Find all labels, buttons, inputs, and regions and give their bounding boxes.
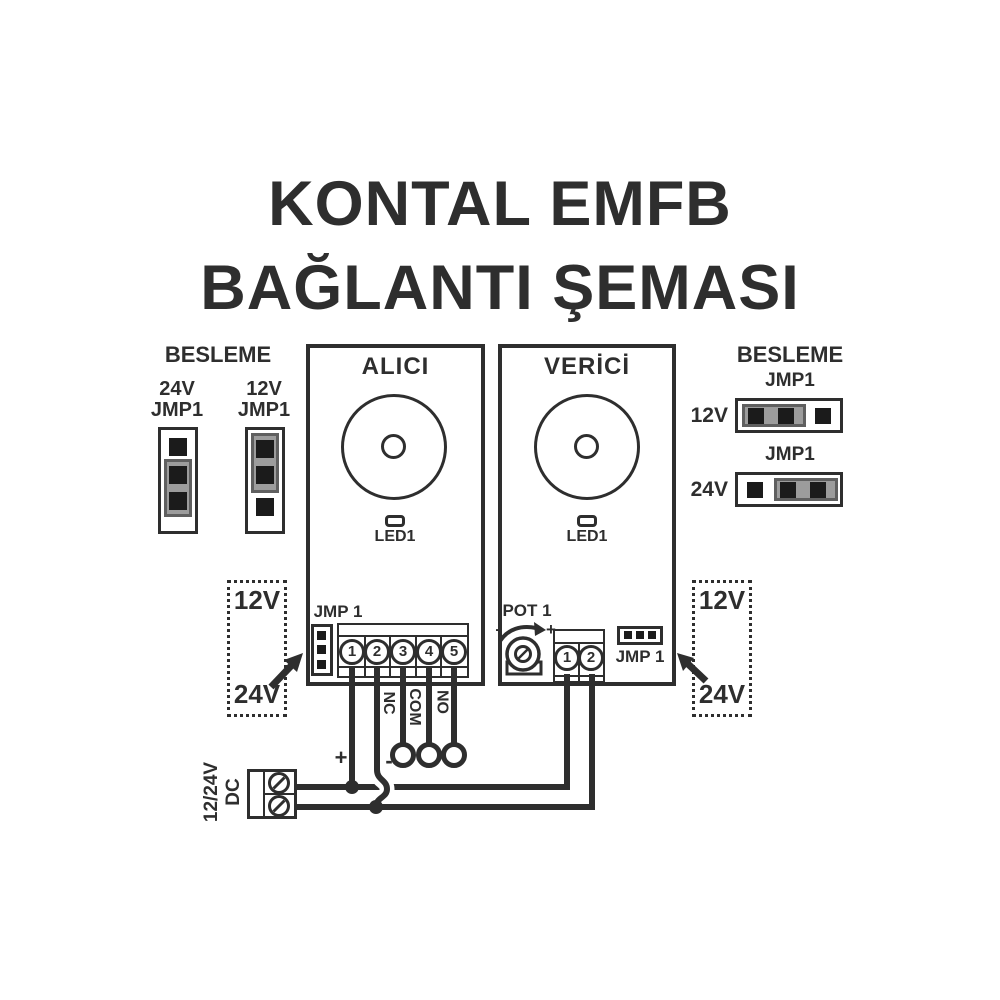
terminal-block-line (339, 635, 467, 637)
alici-terminal-1: 1 (339, 639, 365, 665)
left-jumper-24v-block (158, 427, 198, 534)
dc-supply-voltage: 12/24V (201, 752, 223, 832)
right-besleme-heading: BESLEME (715, 342, 865, 368)
alici-led-label: LED1 (345, 528, 445, 546)
no-output-circle (444, 745, 465, 766)
jumper-cap (774, 478, 838, 501)
alici-terminal-block: 1 2 3 4 5 (337, 623, 469, 678)
junction-dot-negative (369, 800, 383, 814)
alici-terminal-2: 2 (364, 639, 390, 665)
header-pin (636, 631, 644, 639)
left-jumper-12v-label: 12V JMP1 (232, 379, 296, 421)
right-jumper-24v-block (735, 472, 843, 507)
jumper-pin-covered (169, 492, 187, 510)
verici-led-label: LED1 (537, 528, 637, 546)
nc-label: NC (380, 690, 396, 716)
right-jmp1-label-12v: JMP1 (760, 370, 820, 392)
header-pin (317, 645, 326, 654)
left-jumper-12v-block (245, 427, 285, 534)
com-output-circle (419, 745, 440, 766)
left-jumper-12v-voltage: 12V (232, 379, 296, 400)
jumper-pin-open (169, 438, 187, 456)
verici-title: VERİCİ (498, 353, 676, 381)
verici-jmp-header (617, 626, 663, 645)
voltage-note-left: 12V 24V (227, 580, 287, 717)
dc-block-divider (263, 793, 294, 795)
alici-terminal-4: 4 (416, 639, 442, 665)
alici-title: ALICI (306, 353, 485, 381)
right-jmp1-label-24v: JMP1 (760, 444, 820, 466)
left-jumper-24v-jmp: JMP1 (145, 400, 209, 421)
left-jumper-24v-label: 24V JMP1 (145, 379, 209, 421)
minus-label: - (374, 748, 404, 774)
no-label: NO (434, 690, 450, 715)
jumper-pin-covered (748, 408, 764, 424)
alici-horn-inner-circle (381, 434, 406, 459)
wire-alici-terminal-2 (376, 668, 387, 807)
jumper-cap (251, 433, 279, 493)
terminal-block-line (339, 666, 467, 668)
jumper-cap (164, 459, 192, 517)
alici-led (385, 515, 405, 527)
left-jumper-12v-jmp: JMP1 (232, 400, 296, 421)
jumper-pin-covered (256, 440, 274, 458)
header-pin (317, 660, 326, 669)
right-voltage-label-12v: 12V (678, 404, 728, 428)
right-voltage-label-24v: 24V (678, 478, 728, 502)
verici-led (577, 515, 597, 527)
alici-terminal-5: 5 (441, 639, 467, 665)
right-jumper-12v-block (735, 398, 843, 433)
jumper-cap (742, 404, 806, 427)
alici-jmp-header (311, 624, 333, 676)
wire-hop-casing (377, 772, 387, 791)
jumper-pin-open (747, 482, 763, 498)
alici-jmp-label: JMP 1 (306, 602, 370, 622)
jumper-pin-open (815, 408, 831, 424)
verici-terminal-2: 2 (578, 645, 604, 671)
verici-pot-label: POT 1 (497, 601, 557, 621)
voltage-note-left-24v: 24V (230, 679, 284, 710)
voltage-note-right-24v: 24V (695, 679, 749, 710)
title-line-1: KONTAL EMFB (0, 162, 1000, 246)
header-pin (648, 631, 656, 639)
jumper-pin-open (256, 498, 274, 516)
title-line-2: BAĞLANTI ŞEMASI (0, 246, 1000, 330)
jumper-pin-covered (810, 482, 826, 498)
plus-label: + (326, 745, 356, 771)
dc-supply-label: 12/24V DC (201, 752, 245, 832)
left-besleme-heading: BESLEME (148, 342, 288, 368)
dc-terminal-block (247, 769, 297, 819)
jumper-pin-covered (778, 408, 794, 424)
header-pin (317, 631, 326, 640)
dc-supply-dc: DC (223, 752, 245, 832)
voltage-note-left-12v: 12V (230, 585, 284, 616)
voltage-note-right-12v: 12V (695, 585, 749, 616)
verici-terminal-1: 1 (554, 645, 580, 671)
jumper-pin-covered (169, 466, 187, 484)
left-jumper-24v-voltage: 24V (145, 379, 209, 400)
page-title: KONTAL EMFB BAĞLANTI ŞEMASI (0, 162, 1000, 330)
alici-terminal-3: 3 (390, 639, 416, 665)
junction-dot-positive (345, 780, 359, 794)
verici-terminal-block: 1 2 (553, 629, 605, 683)
wiring-diagram: KONTAL EMFB BAĞLANTI ŞEMASI BESLEME 24V … (0, 0, 1000, 1000)
pot-minus-label: - (490, 622, 506, 638)
voltage-note-right: 12V 24V (692, 580, 752, 717)
com-label: COM (406, 687, 422, 727)
header-pin (624, 631, 632, 639)
verici-jmp-label: JMP 1 (611, 647, 669, 667)
jumper-pin-covered (256, 466, 274, 484)
verici-horn-inner-circle (574, 434, 599, 459)
jumper-pin-covered (780, 482, 796, 498)
